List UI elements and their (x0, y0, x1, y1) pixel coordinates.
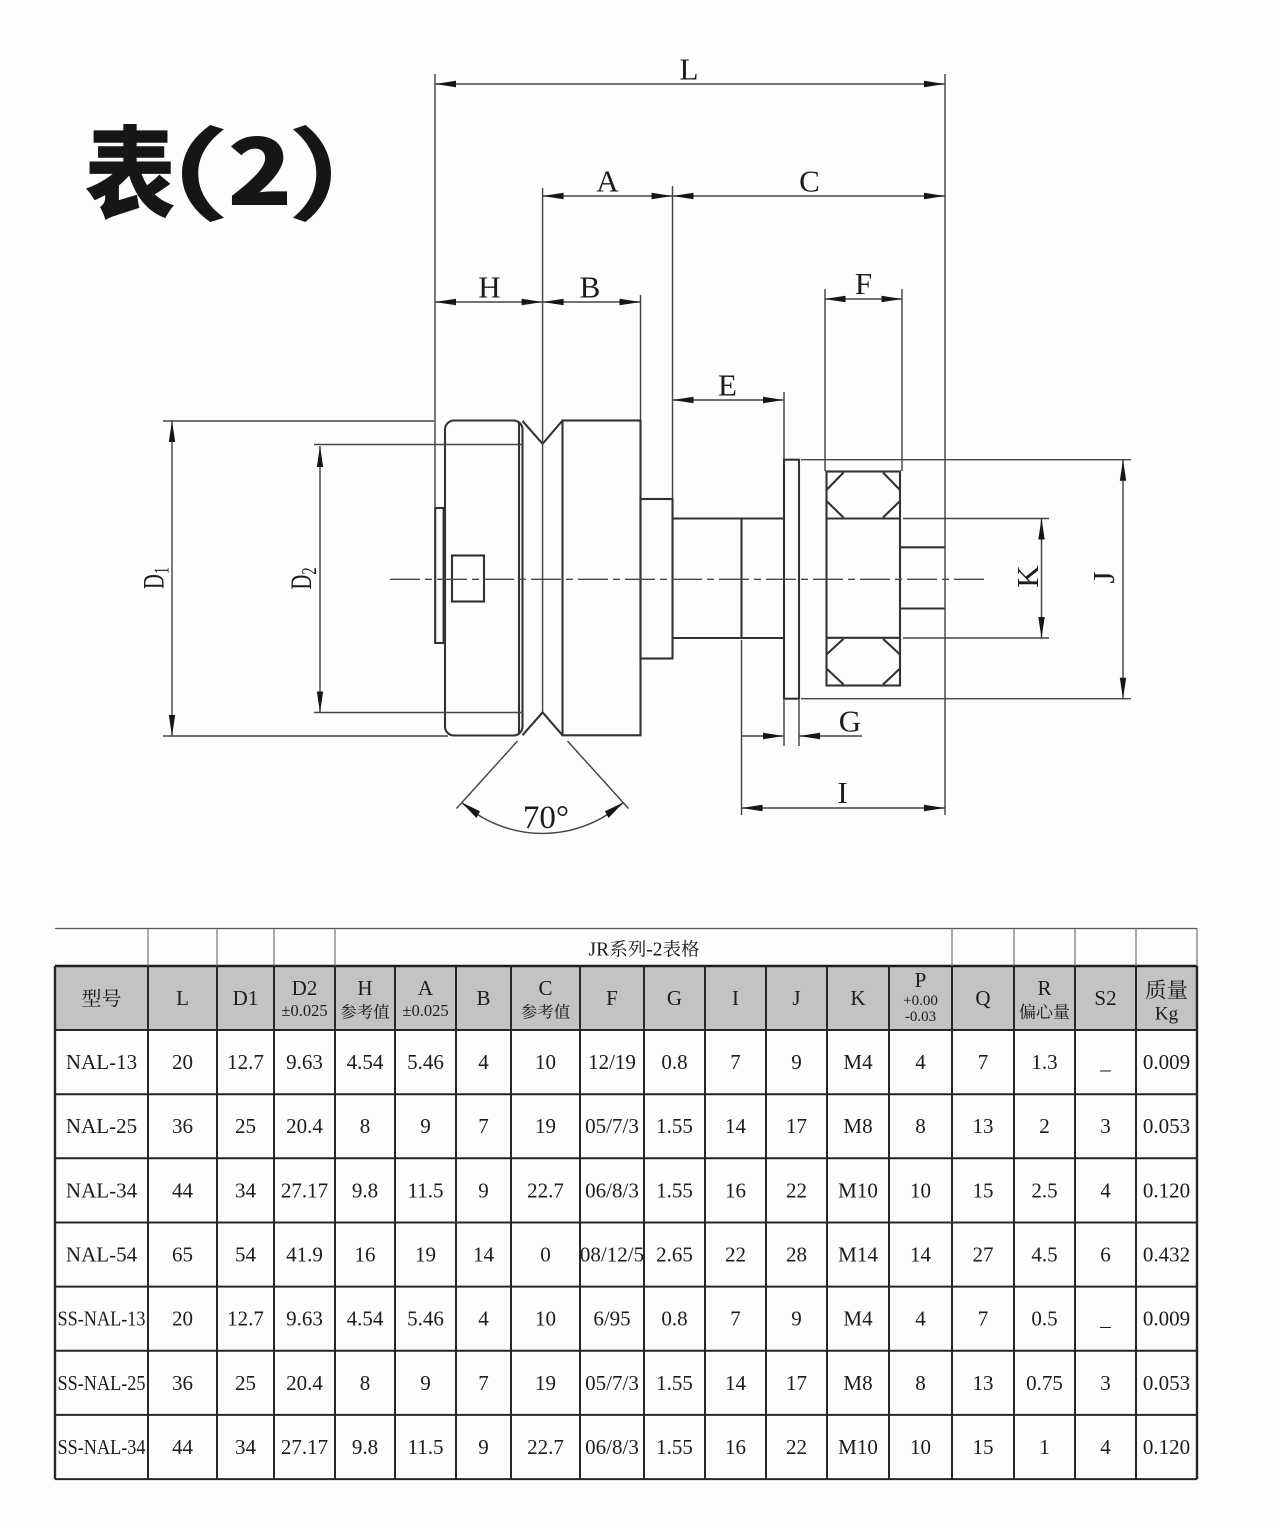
svg-text:4: 4 (915, 1050, 926, 1074)
svg-text:K: K (1010, 565, 1045, 588)
svg-text:10: 10 (910, 1435, 931, 1459)
svg-text:7: 7 (730, 1050, 741, 1074)
svg-text:D2: D2 (292, 976, 318, 1000)
svg-text:05/7/3: 05/7/3 (585, 1371, 639, 1395)
svg-text:12.7: 12.7 (227, 1050, 264, 1074)
svg-text:A: A (418, 976, 434, 1000)
svg-text:54: 54 (235, 1243, 257, 1267)
svg-text:16: 16 (725, 1435, 746, 1459)
svg-text:12/19: 12/19 (588, 1050, 636, 1074)
svg-text:4.5: 4.5 (1031, 1243, 1057, 1267)
svg-text:15: 15 (973, 1178, 994, 1202)
svg-text:K: K (850, 986, 865, 1010)
svg-text:14: 14 (473, 1243, 495, 1267)
svg-text:H: H (357, 976, 372, 1000)
svg-text:20.4: 20.4 (286, 1114, 323, 1138)
svg-text:L: L (176, 986, 189, 1010)
svg-text:70°: 70° (523, 800, 569, 836)
svg-text:B: B (476, 986, 490, 1010)
svg-text:0.8: 0.8 (661, 1050, 687, 1074)
svg-text:16: 16 (355, 1243, 376, 1267)
svg-text:-0.03: -0.03 (905, 1009, 936, 1025)
svg-text:12.7: 12.7 (227, 1307, 264, 1331)
svg-text:4: 4 (1100, 1178, 1111, 1202)
svg-text:22.7: 22.7 (527, 1435, 564, 1459)
svg-text:4: 4 (478, 1307, 489, 1331)
svg-text:M4: M4 (843, 1307, 873, 1331)
svg-text:13: 13 (973, 1371, 994, 1395)
svg-text:08/12/5: 08/12/5 (580, 1243, 644, 1267)
svg-text:J: J (1086, 571, 1121, 583)
svg-text:G: G (839, 704, 861, 739)
svg-text:M14: M14 (838, 1243, 878, 1267)
svg-text:10: 10 (535, 1307, 556, 1331)
svg-text:44: 44 (172, 1178, 194, 1202)
svg-text:6: 6 (1100, 1243, 1111, 1267)
svg-text:D1: D1 (233, 986, 259, 1010)
svg-text:4: 4 (915, 1307, 926, 1331)
svg-text:4.54: 4.54 (347, 1307, 384, 1331)
svg-text:20.4: 20.4 (286, 1371, 323, 1395)
svg-text:±0.025: ±0.025 (281, 1001, 327, 1020)
svg-text:D1: D1 (138, 567, 174, 589)
svg-text:A: A (596, 164, 619, 199)
svg-text:10: 10 (535, 1050, 556, 1074)
svg-text:10: 10 (910, 1178, 931, 1202)
svg-text:0: 0 (540, 1243, 551, 1267)
svg-text:3: 3 (1100, 1371, 1111, 1395)
svg-text:22: 22 (786, 1178, 807, 1202)
svg-text:8: 8 (360, 1371, 371, 1395)
svg-text:0.120: 0.120 (1143, 1178, 1190, 1202)
svg-text:0.120: 0.120 (1143, 1435, 1190, 1459)
svg-text:NAL-25: NAL-25 (66, 1114, 137, 1138)
svg-text:4.54: 4.54 (347, 1050, 384, 1074)
svg-text:22: 22 (786, 1435, 807, 1459)
svg-text:9.8: 9.8 (352, 1178, 378, 1202)
svg-text:C: C (799, 164, 820, 199)
svg-text:05/7/3: 05/7/3 (585, 1114, 639, 1138)
svg-text:8: 8 (915, 1371, 926, 1395)
svg-text:19: 19 (535, 1114, 556, 1138)
svg-text:SS-NAL-13: SS-NAL-13 (58, 1307, 146, 1331)
svg-text:9.63: 9.63 (286, 1307, 323, 1331)
svg-text:27: 27 (973, 1243, 994, 1267)
svg-text:19: 19 (415, 1243, 436, 1267)
svg-text:06/8/3: 06/8/3 (585, 1435, 639, 1459)
svg-text:36: 36 (172, 1114, 193, 1138)
svg-text:1.55: 1.55 (656, 1435, 693, 1459)
svg-text:J: J (792, 986, 800, 1010)
svg-text:JR: JR (589, 940, 610, 961)
svg-text:20: 20 (172, 1307, 193, 1331)
svg-text:14: 14 (910, 1243, 932, 1267)
svg-text:+0.00: +0.00 (903, 993, 938, 1009)
svg-text:9: 9 (791, 1307, 802, 1331)
svg-text:0.009: 0.009 (1143, 1050, 1190, 1074)
svg-text:H: H (478, 270, 500, 305)
svg-text:8: 8 (360, 1114, 371, 1138)
svg-text:B: B (580, 270, 601, 305)
svg-text:0.75: 0.75 (1026, 1371, 1063, 1395)
svg-text:M8: M8 (843, 1371, 872, 1395)
svg-text:±0.025: ±0.025 (402, 1001, 448, 1020)
svg-text:_: _ (1099, 1050, 1111, 1074)
svg-text:SS-NAL-34: SS-NAL-34 (58, 1435, 146, 1459)
svg-text:25: 25 (235, 1371, 256, 1395)
svg-text:0.8: 0.8 (661, 1307, 687, 1331)
svg-text:11.5: 11.5 (408, 1178, 444, 1202)
svg-text:E: E (718, 368, 737, 403)
svg-text:11.5: 11.5 (408, 1435, 444, 1459)
svg-text:19: 19 (535, 1371, 556, 1395)
svg-text:34: 34 (235, 1435, 257, 1459)
svg-text:M4: M4 (843, 1050, 873, 1074)
svg-text:13: 13 (973, 1114, 994, 1138)
svg-text:9: 9 (478, 1178, 489, 1202)
svg-text:S2: S2 (1094, 986, 1116, 1010)
svg-text:7: 7 (478, 1114, 489, 1138)
svg-text:20: 20 (172, 1050, 193, 1074)
svg-text:9.63: 9.63 (286, 1050, 323, 1074)
svg-text:M10: M10 (838, 1178, 878, 1202)
svg-text:M8: M8 (843, 1114, 872, 1138)
svg-text:17: 17 (786, 1371, 807, 1395)
svg-text:14: 14 (725, 1114, 747, 1138)
svg-text:NAL-13: NAL-13 (66, 1050, 137, 1074)
svg-text:Kg: Kg (1155, 1004, 1179, 1025)
svg-text:7: 7 (478, 1371, 489, 1395)
svg-text:0.432: 0.432 (1143, 1243, 1190, 1267)
svg-text:5.46: 5.46 (407, 1307, 444, 1331)
svg-text:L: L (680, 52, 699, 87)
svg-text:4: 4 (1100, 1435, 1111, 1459)
svg-text:22: 22 (725, 1243, 746, 1267)
svg-text:-2: -2 (646, 940, 662, 961)
svg-text:I: I (837, 775, 847, 810)
svg-text:17: 17 (786, 1114, 807, 1138)
svg-text:34: 34 (235, 1178, 257, 1202)
svg-text:41.9: 41.9 (286, 1243, 323, 1267)
svg-text:2.65: 2.65 (656, 1243, 693, 1267)
svg-text:_: _ (1099, 1307, 1111, 1331)
svg-text:1.55: 1.55 (656, 1371, 693, 1395)
svg-text:9.8: 9.8 (352, 1435, 378, 1459)
svg-text:7: 7 (978, 1307, 989, 1331)
svg-text:1.3: 1.3 (1031, 1050, 1057, 1074)
svg-text:0.009: 0.009 (1143, 1307, 1190, 1331)
svg-text:0.5: 0.5 (1031, 1307, 1057, 1331)
svg-text:44: 44 (172, 1435, 194, 1459)
svg-text:0.053: 0.053 (1143, 1371, 1190, 1395)
svg-text:9: 9 (420, 1114, 431, 1138)
svg-text:0.053: 0.053 (1143, 1114, 1190, 1138)
svg-text:5.46: 5.46 (407, 1050, 444, 1074)
svg-text:8: 8 (915, 1114, 926, 1138)
svg-text:2: 2 (1039, 1114, 1050, 1138)
svg-text:1.55: 1.55 (656, 1178, 693, 1202)
svg-text:27.17: 27.17 (281, 1178, 328, 1202)
svg-text:25: 25 (235, 1114, 256, 1138)
svg-text:36: 36 (172, 1371, 193, 1395)
svg-text:G: G (667, 986, 682, 1010)
svg-text:22.7: 22.7 (527, 1178, 564, 1202)
svg-text:NAL-54: NAL-54 (66, 1243, 138, 1267)
svg-text:06/8/3: 06/8/3 (585, 1178, 639, 1202)
svg-text:15: 15 (973, 1435, 994, 1459)
svg-text:D2: D2 (285, 568, 321, 590)
svg-text:SS-NAL-25: SS-NAL-25 (58, 1371, 146, 1395)
svg-text:6/95: 6/95 (593, 1307, 630, 1331)
svg-text:14: 14 (725, 1371, 747, 1395)
svg-text:3: 3 (1100, 1114, 1111, 1138)
svg-text:2.5: 2.5 (1031, 1178, 1057, 1202)
svg-text:9: 9 (791, 1050, 802, 1074)
svg-text:I: I (732, 986, 739, 1010)
svg-text:P: P (915, 968, 927, 992)
svg-text:4: 4 (478, 1050, 489, 1074)
svg-text:F: F (606, 986, 618, 1010)
svg-text:1: 1 (1039, 1435, 1050, 1459)
svg-text:9: 9 (478, 1435, 489, 1459)
svg-text:27.17: 27.17 (281, 1435, 328, 1459)
svg-text:7: 7 (730, 1307, 741, 1331)
svg-text:7: 7 (978, 1050, 989, 1074)
svg-text:9: 9 (420, 1371, 431, 1395)
svg-text:Q: Q (975, 986, 990, 1010)
svg-text:R: R (1037, 976, 1051, 1000)
svg-text:NAL-34: NAL-34 (66, 1178, 138, 1202)
svg-text:1.55: 1.55 (656, 1114, 693, 1138)
svg-text:16: 16 (725, 1178, 746, 1202)
svg-text:65: 65 (172, 1243, 193, 1267)
svg-text:28: 28 (786, 1243, 807, 1267)
svg-text:F: F (855, 266, 872, 301)
svg-text:C: C (538, 976, 552, 1000)
svg-text:M10: M10 (838, 1435, 878, 1459)
